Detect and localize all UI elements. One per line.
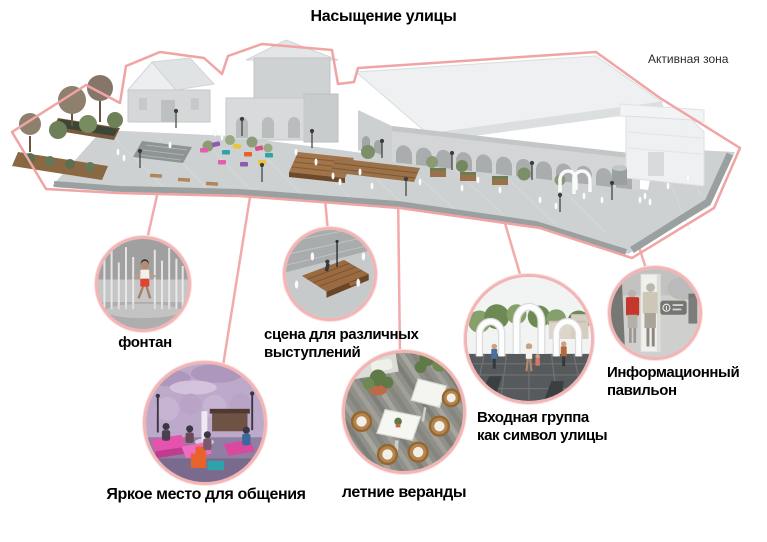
info-pavilion-photo-illustration (611, 269, 699, 357)
callout-entrance-label: Входная группа как символ улицы (477, 409, 607, 446)
info-sign (660, 301, 686, 315)
verandas-photo-illustration (345, 353, 463, 471)
callout-fountain-label: фонтан (95, 334, 195, 352)
callout-entrance-photo (464, 274, 594, 404)
callout-stage-label: сцена для различных выступлений (264, 326, 418, 363)
info-kiosk-on-plan (612, 165, 627, 185)
callout-info-pavilion-photo (608, 266, 702, 360)
bright-place-photo-illustration (146, 364, 264, 482)
callout-verandas-label: летние веранды (322, 483, 486, 503)
building-house-b (226, 40, 338, 142)
callout-fountain-photo (95, 236, 191, 332)
stage-photo-illustration (286, 230, 374, 318)
entrance-photo-illustration (467, 277, 591, 401)
callout-stage-photo (283, 227, 377, 321)
callout-verandas-photo (342, 350, 466, 474)
building-house-a (128, 58, 214, 122)
callout-bright-place-photo (143, 361, 267, 485)
slide: Насыщение улицы Активная зона (0, 0, 767, 542)
callout-info-pavilion-label: Информационный павильон (607, 364, 739, 401)
fountain-photo-illustration (98, 239, 188, 329)
callout-bright-place-label: Яркое место для общения (100, 485, 312, 505)
